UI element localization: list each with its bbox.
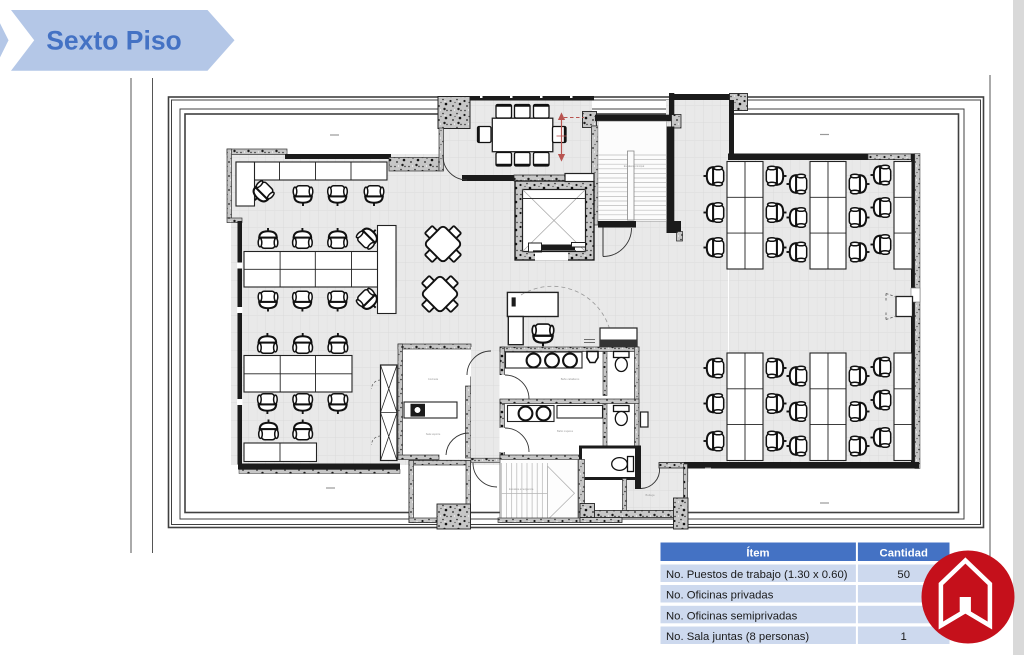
svg-text:No. Sala juntas (8 personas): No. Sala juntas (8 personas) bbox=[666, 631, 809, 643]
svg-text:50: 50 bbox=[897, 569, 910, 581]
svg-text:Escalera principal: Escalera principal bbox=[624, 164, 645, 168]
svg-text:No. Oficinas privadas: No. Oficinas privadas bbox=[666, 590, 774, 602]
svg-text:Cantidad: Cantidad bbox=[880, 548, 928, 560]
svg-text:Sexto Piso: Sexto Piso bbox=[46, 26, 182, 56]
svg-text:Sala soporte: Sala soporte bbox=[426, 432, 441, 436]
svg-text:Escalera emergencia: Escalera emergencia bbox=[509, 487, 534, 491]
svg-text:Bodega: Bodega bbox=[646, 493, 656, 497]
svg-text:Baño caballeros: Baño caballeros bbox=[561, 377, 580, 381]
svg-text:Cocineta: Cocineta bbox=[428, 377, 439, 381]
svg-text:No. Oficinas semiprivadas: No. Oficinas semiprivadas bbox=[666, 610, 798, 622]
svg-text:No. Puestos de trabajo (1.30 x: No. Puestos de trabajo (1.30 x 0.60) bbox=[666, 569, 848, 581]
svg-text:Ítem: Ítem bbox=[746, 547, 769, 560]
svg-text:1: 1 bbox=[901, 631, 907, 643]
svg-text:Baño mujeres: Baño mujeres bbox=[557, 429, 574, 433]
